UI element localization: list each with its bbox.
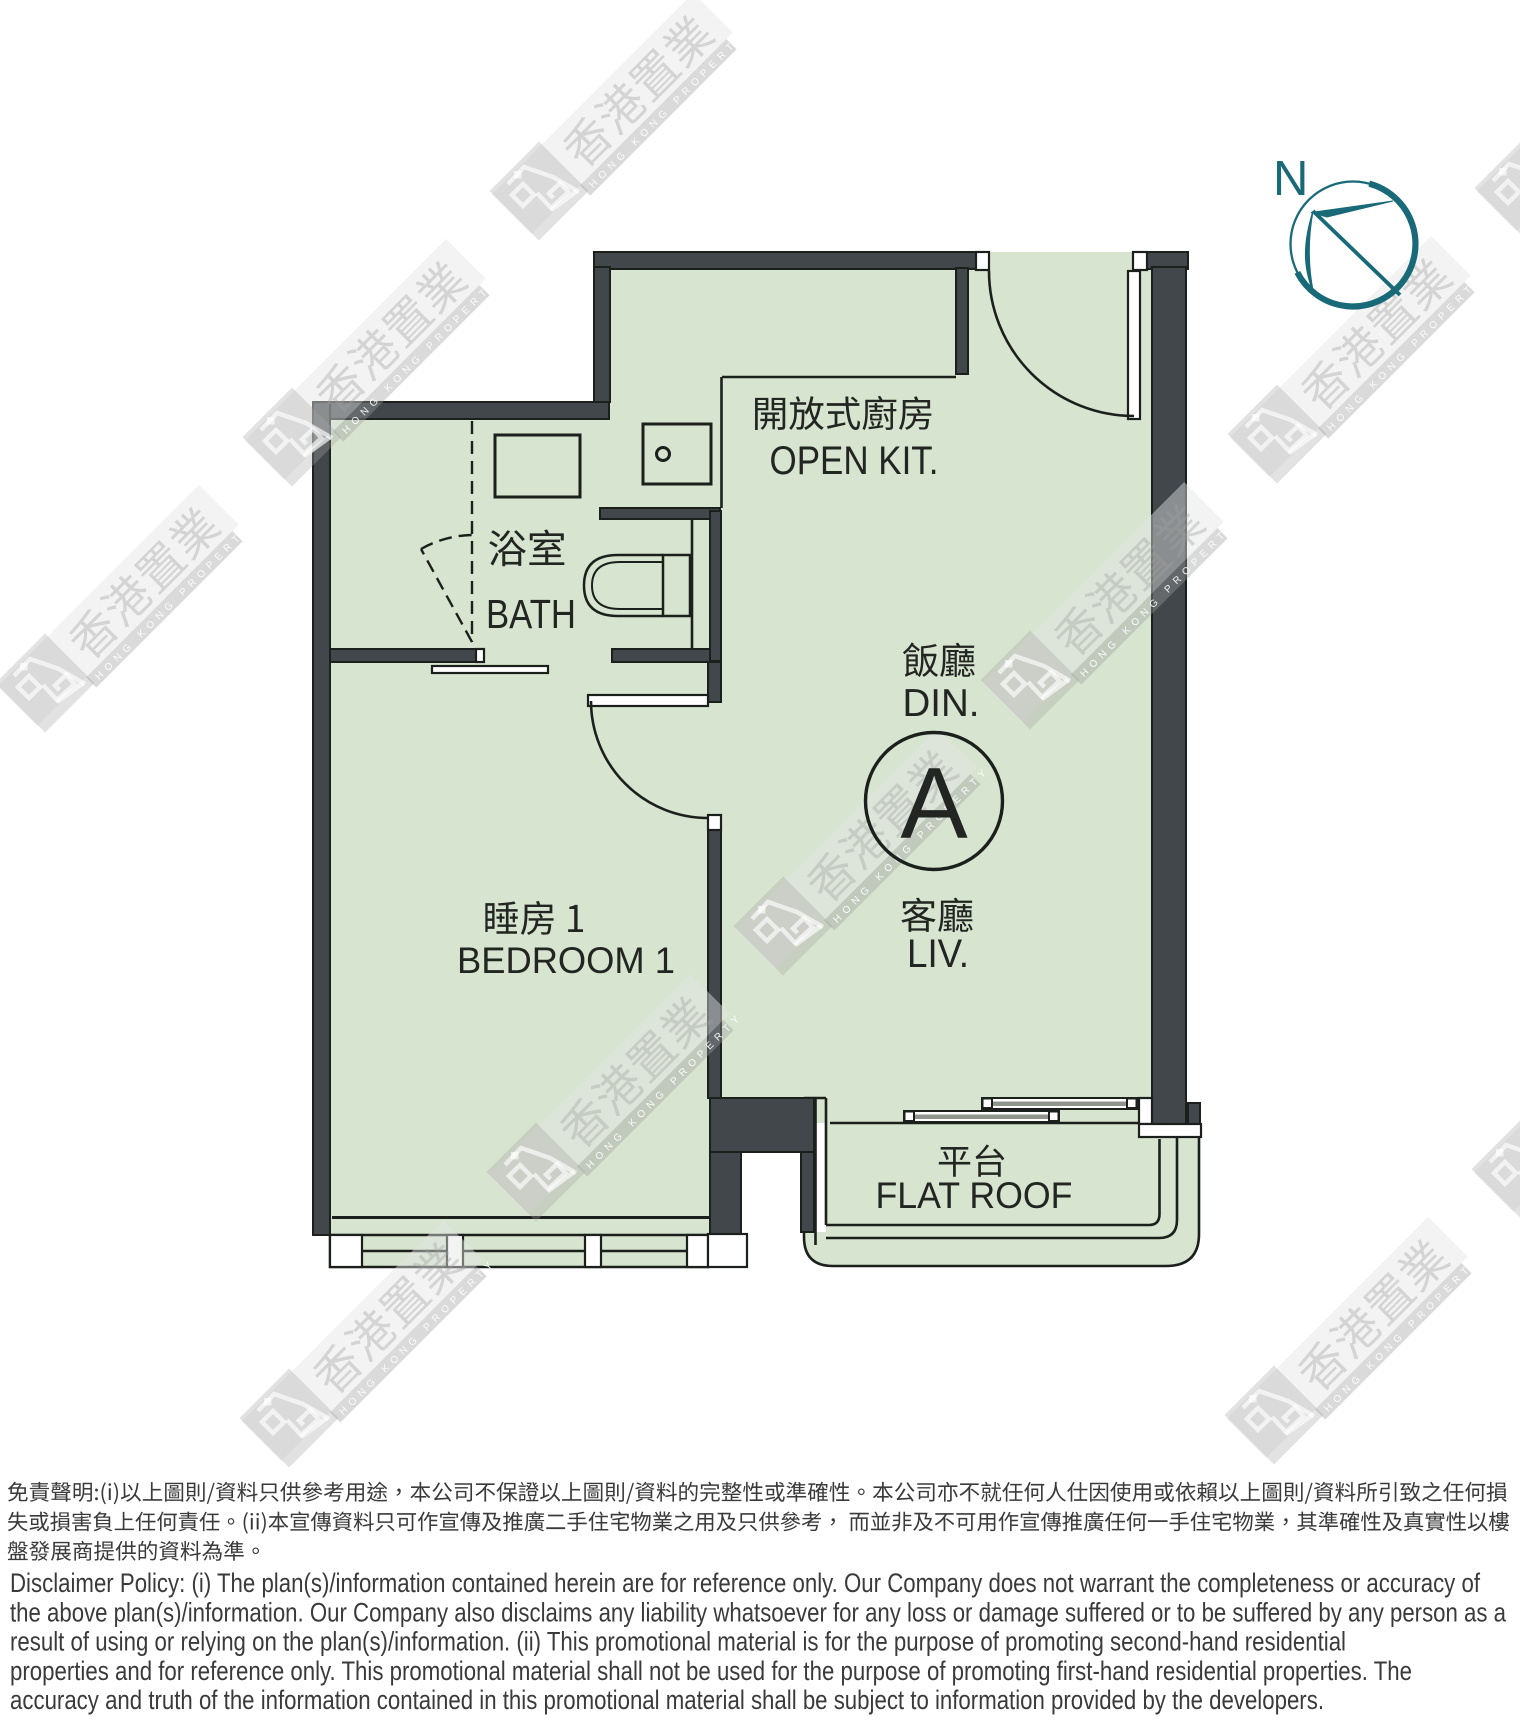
svg-text:BEDROOM 1: BEDROOM 1 [457, 940, 675, 981]
svg-text:result of using or relying on: result of using or relying on the plan(s… [10, 1627, 1346, 1657]
svg-text:DIN.: DIN. [903, 682, 980, 725]
svg-text:BATH: BATH [486, 591, 576, 637]
svg-text:OPEN KIT.: OPEN KIT. [770, 439, 939, 483]
svg-text:A: A [900, 748, 968, 860]
svg-text:Disclaimer Policy: (i) The pla: Disclaimer Policy: (i) The plan(s)/infor… [10, 1568, 1481, 1598]
svg-text:FLAT ROOF: FLAT ROOF [876, 1175, 1073, 1216]
svg-text:accuracy and truth of the info: accuracy and truth of the information co… [10, 1685, 1324, 1715]
svg-text:LIV.: LIV. [907, 932, 969, 976]
svg-text:N: N [1273, 152, 1308, 206]
svg-text:the above plan(s)/information.: the above plan(s)/information. Our Compa… [10, 1597, 1506, 1627]
svg-text:properties and for reference o: properties and for reference only. This … [10, 1656, 1412, 1686]
